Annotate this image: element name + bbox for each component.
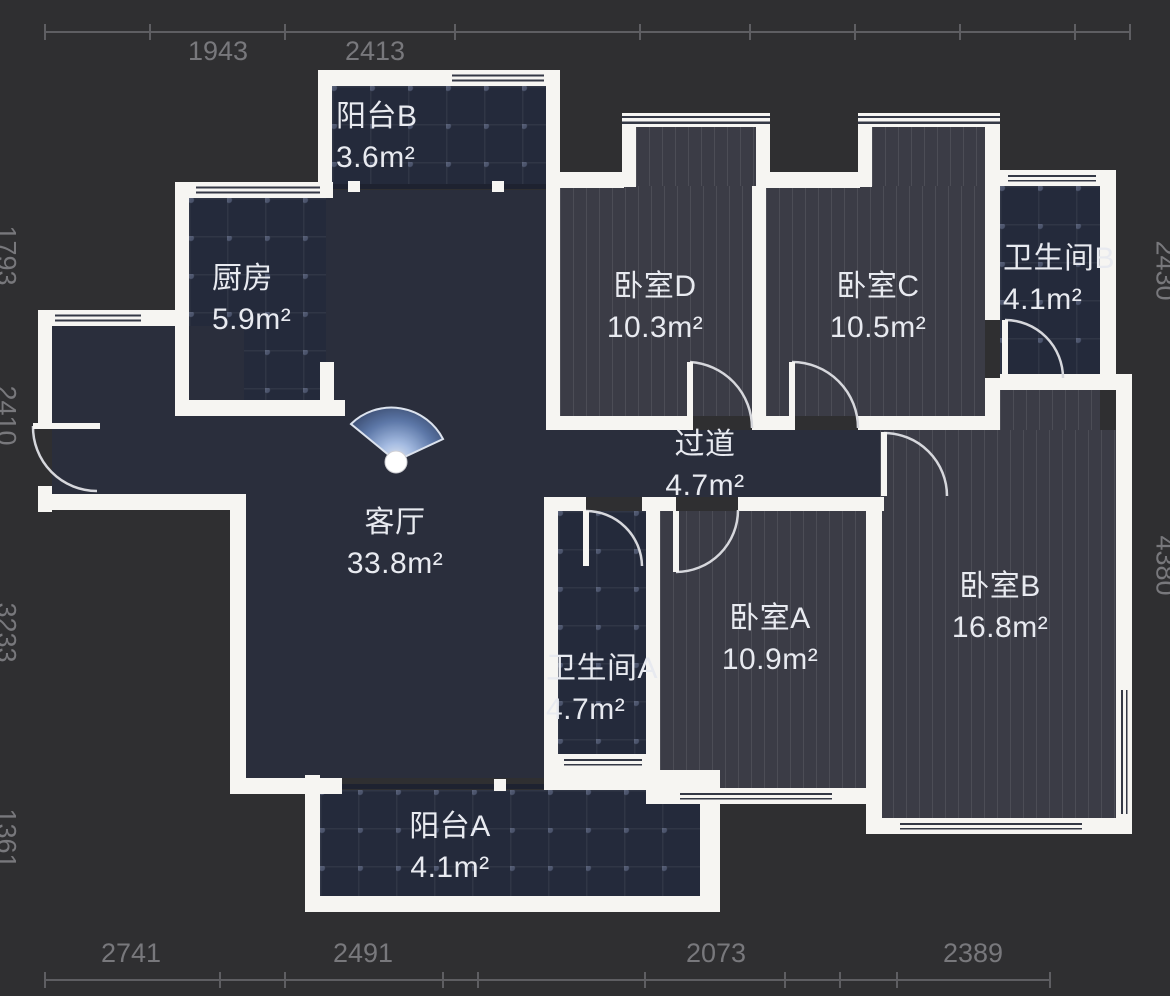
- room-label-bathroom-b: 卫生间B 4.1m²: [1003, 238, 1115, 320]
- room-area: 3.6m²: [336, 137, 418, 178]
- wall-segment: [544, 770, 720, 790]
- room-label-bedroom-a: 卧室A 10.9m²: [690, 598, 850, 680]
- room-label-living: 客厅 33.8m²: [320, 502, 470, 584]
- room-area: 5.9m²: [212, 299, 291, 340]
- wall-segment: [318, 70, 332, 192]
- window-kitchen: [196, 184, 320, 196]
- dim-left-1: 1793: [0, 201, 22, 311]
- room-name: 卧室D: [570, 266, 740, 307]
- window-bedroom-b-east: [1119, 690, 1130, 814]
- floor-plan: 阳台B 3.6m² 厨房 5.9m² 卧室D 10.3m² 卧室C 10.5m²…: [0, 0, 1170, 996]
- room-area: 16.8m²: [920, 607, 1080, 648]
- wall-segment: [1000, 374, 1116, 390]
- wall-segment: [305, 775, 320, 912]
- wall-segment: [766, 172, 860, 188]
- window-bedroom-a: [680, 791, 832, 802]
- room-name: 卧室B: [920, 566, 1080, 607]
- wall-segment: [752, 186, 766, 430]
- floor-living: [326, 190, 546, 778]
- dim-right-2: 4380: [1150, 511, 1170, 621]
- room-name: 卫生间B: [1003, 238, 1115, 279]
- room-label-bedroom-d: 卧室D 10.3m²: [570, 266, 740, 348]
- room-area: 4.7m²: [630, 465, 780, 506]
- wall-stub: [492, 181, 504, 192]
- dim-left-4: 1361: [0, 784, 22, 894]
- floor-living-hall-connector: [546, 430, 560, 497]
- room-label-bedroom-c: 卧室C 10.5m²: [793, 266, 963, 348]
- room-name: 卧室C: [793, 266, 963, 307]
- dim-right-1: 2430: [1150, 216, 1170, 326]
- wall-segment: [230, 494, 246, 794]
- floor-bedroom-c-bay: [872, 127, 986, 186]
- room-name: 阳台B: [336, 96, 418, 137]
- room-name: 卧室A: [690, 598, 850, 639]
- wall-segment: [175, 182, 189, 414]
- dim-left-2: 2410: [0, 361, 22, 471]
- wall-stub: [494, 779, 506, 791]
- room-area: 10.3m²: [570, 307, 740, 348]
- window-bedroom-d-bay: [622, 113, 770, 127]
- room-area: 10.5m²: [793, 307, 963, 348]
- room-name: 客厅: [320, 502, 470, 543]
- wall-segment: [305, 896, 720, 912]
- room-name: 卫生间A: [546, 648, 658, 689]
- room-area: 10.9m²: [690, 639, 850, 680]
- room-label-kitchen: 厨房 5.9m²: [212, 258, 291, 340]
- floor-bedroom-b-notch: [1000, 390, 1100, 430]
- window-bedroom-b-south: [900, 821, 1082, 832]
- room-name: 阳台A: [370, 806, 530, 847]
- room-label-balcony-a: 阳台A 4.1m²: [370, 806, 530, 888]
- wall-segment: [320, 362, 334, 404]
- room-name: 过道: [630, 424, 780, 465]
- room-area: 4.7m²: [546, 689, 658, 730]
- window-bedroom-c-bay: [858, 113, 1000, 127]
- window-balcony-b: [452, 72, 544, 84]
- dim-left-3: 3233: [0, 578, 22, 688]
- wall-segment: [546, 70, 560, 430]
- dim-top-2: 2413: [320, 36, 430, 67]
- slider-balcony-a: [338, 784, 544, 789]
- wall-segment: [38, 310, 52, 426]
- room-name: 厨房: [212, 258, 291, 299]
- dim-bottom-3: 2073: [661, 938, 771, 969]
- window-bathroom-a: [564, 757, 642, 768]
- dim-top-1: 1943: [163, 36, 273, 67]
- wall-segment: [866, 497, 882, 794]
- dim-bottom-2: 2491: [308, 938, 418, 969]
- room-area: 4.1m²: [370, 847, 530, 888]
- floor-living-west: [244, 414, 328, 778]
- dim-bottom-1: 2741: [76, 938, 186, 969]
- window-alcove: [55, 312, 141, 324]
- window-bathroom-b: [1008, 173, 1096, 184]
- room-label-balcony-b: 阳台B 3.6m²: [336, 96, 418, 178]
- room-label-bedroom-b: 卧室B 16.8m²: [920, 566, 1080, 648]
- wall-segment: [858, 416, 1000, 430]
- wall-segment: [38, 494, 246, 510]
- dim-bottom-4: 2389: [918, 938, 1028, 969]
- wall-segment: [544, 497, 586, 511]
- room-label-bathroom-a: 卫生间A 4.7m²: [546, 648, 658, 730]
- wall-segment: [230, 778, 342, 794]
- room-area: 33.8m²: [320, 543, 470, 584]
- slider-balcony-b: [332, 184, 546, 189]
- room-area: 4.1m²: [1003, 279, 1115, 320]
- room-label-hallway: 过道 4.7m²: [630, 424, 780, 506]
- wall-stub: [348, 181, 360, 192]
- floor-bedroom-d-bay: [636, 127, 756, 186]
- wall-segment: [546, 172, 624, 188]
